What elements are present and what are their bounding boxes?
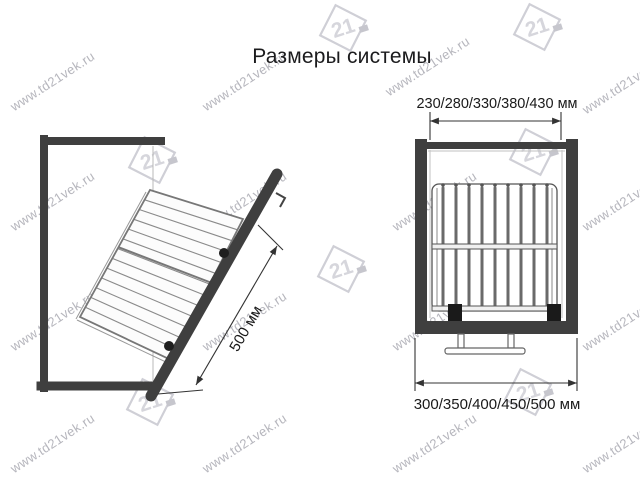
door-mount-dot — [219, 248, 229, 258]
top-dimension-label: 230/280/330/380/430 мм — [416, 96, 577, 112]
page-title: Размеры системы — [252, 45, 431, 69]
logo-21-icon: 21 — [311, 239, 371, 299]
watermark-text: www.td21vek.ru — [579, 51, 640, 117]
svg-text:21: 21 — [328, 14, 358, 43]
watermark-text: www.td21vek.ru — [199, 410, 290, 476]
right-view: 230/280/330/380/430 мм — [414, 96, 581, 413]
pedestal-mount — [445, 334, 525, 354]
watermark-text: www.td21vek.ru — [7, 48, 98, 114]
basket-mid-rail — [432, 244, 557, 249]
logo-21-icon: 21 — [503, 122, 563, 182]
door-hook — [276, 193, 285, 207]
bottom-dimension-label: 300/350/400/450/500 мм — [414, 396, 581, 413]
svg-text:21: 21 — [137, 146, 167, 175]
basket-foot — [448, 304, 462, 321]
bottom-dimension — [415, 338, 577, 391]
screenshot-root: www.td21vek.ru www.td21vek.ru www.td21ve… — [0, 0, 640, 480]
diagram-canvas: www.td21vek.ru www.td21vek.ru www.td21ve… — [0, 0, 640, 480]
watermark-text: www.td21vek.ru — [7, 288, 98, 354]
logo-21-icon: 21 — [507, 0, 567, 57]
watermark-text: www.td21vek.ru — [579, 410, 640, 476]
watermark-text: www.td21vek.ru — [7, 168, 98, 234]
svg-text:21: 21 — [522, 13, 552, 42]
logo-21-icon: 21 — [120, 372, 180, 432]
watermark-text: www.td21vek.ru — [579, 168, 640, 234]
svg-text:21: 21 — [326, 255, 356, 284]
basket-foot — [547, 304, 561, 321]
door-mount-dot — [164, 341, 174, 351]
front-basket — [432, 183, 561, 321]
top-dimension — [430, 112, 561, 140]
watermark-text: www.td21vek.ru — [579, 288, 640, 354]
watermark-text: www.td21vek.ru — [389, 410, 480, 476]
logo-21-icon: 21 — [498, 362, 558, 422]
watermark-text: www.td21vek.ru — [7, 410, 98, 476]
